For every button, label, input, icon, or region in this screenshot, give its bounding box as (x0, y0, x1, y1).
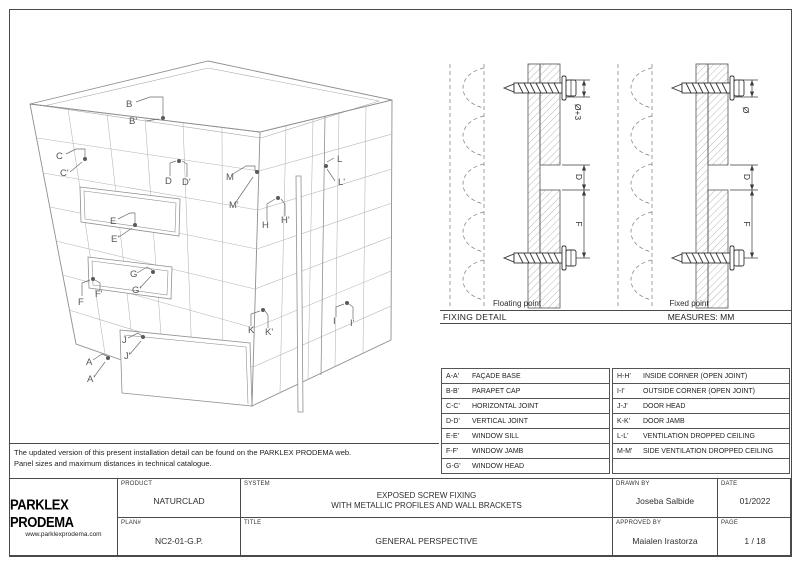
floating-point-detail: Ø+3 D F Floating point (450, 64, 590, 308)
logo-website: www.parklexprodema.com (25, 531, 101, 538)
dimension-labels: Ø D F (741, 107, 752, 227)
door-opening (120, 330, 252, 406)
label-D2: D' (182, 177, 191, 188)
label-H: H (262, 220, 269, 231)
label-E2: E' (111, 234, 119, 245)
dim-F: F (574, 221, 584, 226)
fixing-detail-title: FIXING DETAIL (443, 312, 507, 322)
legend-code: D-D' (442, 418, 472, 425)
label-J: J (122, 335, 127, 346)
fixing-detail-svg: Ø+3 D F Floating point (438, 55, 792, 310)
legend-desc: DOOR HEAD (643, 403, 789, 410)
insulation-symbol (618, 64, 652, 308)
side-grid-lines (253, 106, 392, 393)
legend-desc: DOOR JAMB (643, 418, 789, 425)
label-F2: F' (95, 289, 103, 300)
legend-desc: VENTILATION DROPPED CEILING (643, 433, 789, 440)
plan-value: NC2-01-G.P. (118, 518, 240, 557)
legend-code: I-I' (613, 388, 643, 395)
fixed-point-detail: Ø D F Fixed point (618, 64, 758, 308)
label-J2: J' (124, 351, 131, 362)
label-D: D (165, 176, 172, 187)
label-F: F (78, 297, 84, 308)
label-L: L (337, 154, 342, 165)
floating-point-caption: Floating point (493, 299, 542, 308)
legend-row: B-B'PARAPET CAP (441, 383, 610, 399)
window-openings (80, 187, 180, 299)
note-line-2: Panel sizes and maximum distances in tec… (14, 458, 434, 469)
date-value: 01/2022 (718, 479, 792, 517)
label-M: M (226, 172, 234, 183)
legend-code: B-B' (442, 388, 472, 395)
dim-D: D (742, 174, 752, 180)
drawing-sheet: { "colors": {"border": "#4a4a4a", "drawi… (0, 0, 800, 565)
legend-desc: HORIZONTAL JOINT (472, 403, 609, 410)
label-L2: L' (338, 177, 345, 188)
legend-row: A-A'FAÇADE BASE (441, 368, 610, 384)
logo-cell: PARKLEX PRODEMA www.parklexprodema.com (10, 479, 118, 557)
title-block: PARKLEX PRODEMA www.parklexprodema.com P… (9, 478, 791, 556)
fixing-detail-rule-top (440, 310, 791, 311)
system-value-line2: WITH METALLIC PROFILES AND WALL BRACKETS (331, 501, 521, 511)
system-value-line1: EXPOSED SCREW FIXING (377, 491, 477, 501)
drawn-by-cell: DRAWN BY Joseba Salbide (613, 479, 718, 518)
notes-divider (9, 443, 439, 444)
legend-desc: SIDE VENTILATION DROPPED CEILING (643, 448, 789, 455)
legend-code: M-M' (613, 448, 643, 455)
label-I: I (333, 316, 336, 327)
label-E: E (110, 216, 116, 227)
perspective-drawing-svg: B B' C C' D D' E E' F F' G G' H H' I I' … (9, 40, 434, 440)
product-value: NATURCLAD (118, 479, 240, 517)
wall-profile-and-panels (696, 64, 728, 308)
system-cell: SYSTEM EXPOSED SCREW FIXING WITH METALLI… (241, 479, 613, 518)
legend-code: A-A' (442, 373, 472, 380)
notes-block: The updated version of this present inst… (14, 447, 434, 469)
title-cell: TITLE GENERAL PERSPECTIVE (241, 518, 613, 557)
legend-desc: OUTSIDE CORNER (OPEN JOINT) (643, 388, 789, 395)
approved-by-value: Maialen Irastorza (613, 518, 717, 557)
leader-lines (66, 97, 353, 377)
label-B: B (126, 99, 132, 110)
title-value: GENERAL PERSPECTIVE (241, 518, 612, 557)
label-B2: B' (129, 116, 137, 127)
label-A2: A' (87, 374, 95, 385)
dim-F: F (742, 221, 752, 226)
legend-code: K-K' (613, 418, 643, 425)
fixing-detail-rule-bottom (440, 323, 791, 324)
measures-label: MEASURES: MM (612, 312, 790, 322)
legend-desc: WINDOW JAMB (472, 448, 609, 455)
note-line-1: The updated version of this present inst… (14, 447, 434, 458)
date-cell: DATE 01/2022 (718, 479, 792, 518)
legend-code: F-F' (442, 448, 472, 455)
fixed-point-caption: Fixed point (669, 299, 709, 308)
drawn-by-value: Joseba Salbide (613, 479, 717, 517)
approved-by-cell: APPROVED BY Maialen Irastorza (613, 518, 718, 557)
insulation-symbol (450, 64, 484, 308)
legend-desc: WINDOW SILL (472, 433, 609, 440)
label-K2: K' (265, 327, 273, 338)
legend-row (612, 458, 790, 474)
label-M2: M' (229, 200, 239, 211)
legend-row: M-M'SIDE VENTILATION DROPPED CEILING (612, 443, 790, 459)
dim-diameter: Ø (741, 107, 751, 114)
legend-desc: WINDOW HEAD (472, 463, 609, 470)
label-G: G (130, 269, 137, 280)
legend-code: H-H' (613, 373, 643, 380)
label-C: C (56, 151, 63, 162)
label-C2: C' (60, 168, 69, 179)
dim-diameter-plus3: Ø+3 (573, 104, 583, 121)
legend-row: G-G'WINDOW HEAD (441, 458, 610, 474)
legend-row: I-I'OUTSIDE CORNER (OPEN JOINT) (612, 383, 790, 399)
label-I2: I' (350, 318, 355, 329)
legend-desc: VERTICAL JOINT (472, 418, 609, 425)
product-cell: PRODUCT NATURCLAD (118, 479, 241, 518)
legend-row: L-L'VENTILATION DROPPED CEILING (612, 428, 790, 444)
dim-D: D (574, 174, 584, 180)
downpipe (296, 176, 303, 412)
legend-row: D-D'VERTICAL JOINT (441, 413, 610, 429)
page-value: 1 / 18 (718, 518, 792, 557)
label-H2: H' (281, 215, 290, 226)
wall-profile-and-panels (528, 64, 560, 308)
legend-table-left: A-A'FAÇADE BASE B-B'PARAPET CAP C-C'HORI… (441, 368, 610, 474)
legend-desc: PARAPET CAP (472, 388, 609, 395)
legend-code: E-E' (442, 433, 472, 440)
legend-row: E-E'WINDOW SILL (441, 428, 610, 444)
legend-row: F-F'WINDOW JAMB (441, 443, 610, 459)
plan-cell: PLAN# NC2-01-G.P. (118, 518, 241, 557)
label-A: A (86, 357, 93, 368)
parklex-prodema-logo: PARKLEX PRODEMA (10, 496, 117, 531)
label-K: K (248, 325, 255, 336)
page-cell: PAGE 1 / 18 (718, 518, 792, 557)
legend-desc: FAÇADE BASE (472, 373, 609, 380)
legend-row: K-K'DOOR JAMB (612, 413, 790, 429)
legend-table-right: H-H'INSIDE CORNER (OPEN JOINT) I-I'OUTSI… (612, 368, 790, 474)
legend-code: C-C' (442, 403, 472, 410)
legend-code: J-J' (613, 403, 643, 410)
legend-code: G-G' (442, 463, 472, 470)
legend-row: J-J'DOOR HEAD (612, 398, 790, 414)
label-G2: G' (132, 285, 141, 296)
legend-code: L-L' (613, 433, 643, 440)
legend-desc: INSIDE CORNER (OPEN JOINT) (643, 373, 789, 380)
legend-row: C-C'HORIZONTAL JOINT (441, 398, 610, 414)
legend-row: H-H'INSIDE CORNER (OPEN JOINT) (612, 368, 790, 384)
